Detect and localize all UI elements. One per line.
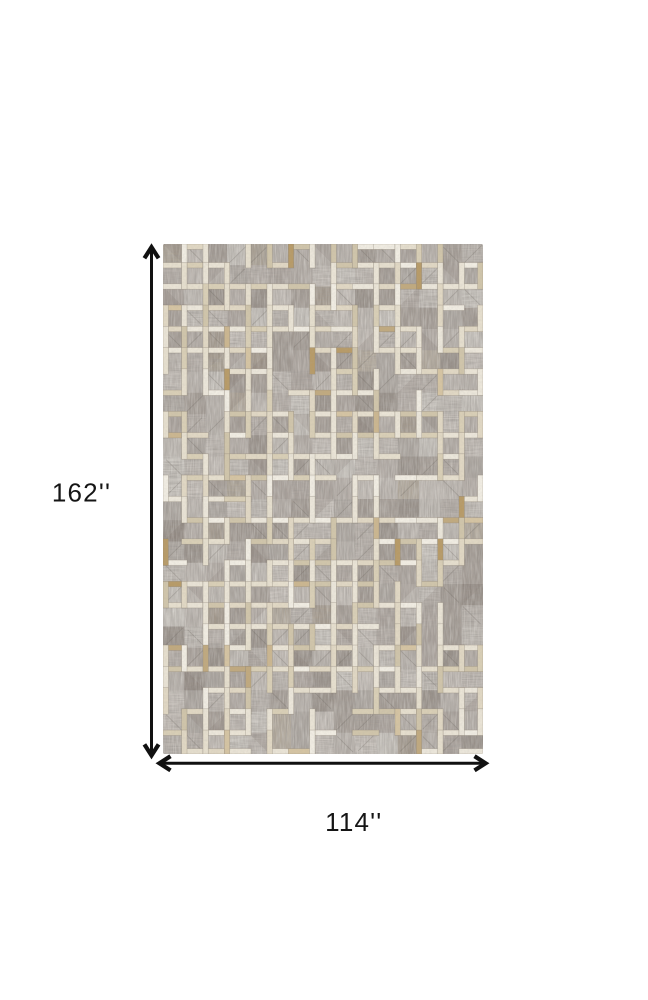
svg-text:114'': 114'' (325, 807, 382, 837)
svg-text:162'': 162'' (52, 478, 111, 508)
